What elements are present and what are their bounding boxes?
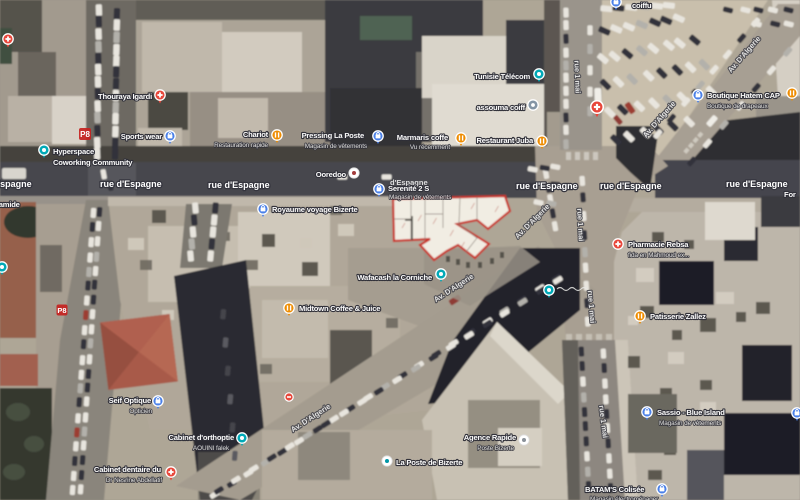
svg-text:Boutique de drapeaux: Boutique de drapeaux [707, 103, 768, 110]
svg-text:Marmaris coffe: Marmaris coffe [397, 133, 448, 142]
svg-text:Sports wear: Sports wear [121, 132, 163, 141]
svg-text:fida en Mahmoud ex...: fida en Mahmoud ex... [628, 252, 689, 259]
svg-text:rue d'Espagne: rue d'Espagne [600, 181, 662, 191]
svg-text:Vu récemment: Vu récemment [410, 144, 450, 151]
svg-text:rue 1 mai: rue 1 mai [572, 60, 582, 93]
svg-text:BATAM'S Colisée: BATAM'S Colisée [585, 485, 644, 494]
svg-text:Tunisie Télécom: Tunisie Télécom [474, 72, 530, 81]
svg-text:coiffu: coiffu [632, 1, 652, 10]
svg-text:Magasin électroménager: Magasin électroménager [590, 496, 659, 500]
svg-text:Restaurant Juba: Restaurant Juba [476, 136, 533, 145]
svg-text:La Poste de Bizerte: La Poste de Bizerte [396, 458, 462, 467]
svg-text:Pharmacie Rebsa: Pharmacie Rebsa [628, 240, 689, 249]
svg-text:ramide: ramide [0, 200, 20, 209]
svg-text:Wafacash la Corniche: Wafacash la Corniche [357, 273, 432, 282]
svg-text:Agence Rapide: Agence Rapide [464, 433, 516, 442]
svg-text:Restauration rapide: Restauration rapide [214, 142, 268, 149]
svg-text:Midtown Coffee & Juice: Midtown Coffee & Juice [299, 304, 380, 313]
svg-text:Poste Bizerte: Poste Bizerte [477, 445, 514, 452]
svg-text:Cabinet d'orthoptie: Cabinet d'orthoptie [168, 433, 234, 442]
svg-text:Magasin de vêtements: Magasin de vêtements [389, 194, 451, 201]
svg-text:AOUINI falek: AOUINI falek [193, 445, 230, 452]
svg-text:Seif Optique: Seif Optique [109, 396, 151, 405]
svg-text:assouma coiff: assouma coiff [477, 103, 526, 112]
svg-text:rue d'Espagne: rue d'Espagne [726, 179, 788, 189]
svg-text:rue d'Espagne: rue d'Espagne [208, 180, 270, 190]
svg-text:P8: P8 [80, 130, 90, 139]
svg-text:Royaume voyage Bizerte: Royaume voyage Bizerte [272, 205, 358, 214]
svg-text:Opticien: Opticien [129, 408, 152, 415]
svg-text:For: For [784, 190, 796, 199]
svg-text:Boutique Hatem CAP: Boutique Hatem CAP [707, 91, 780, 100]
svg-text:Sassio - Blue Island: Sassio - Blue Island [657, 408, 725, 417]
svg-text:rue d'Espagne: rue d'Espagne [0, 179, 32, 189]
svg-text:Chariot: Chariot [243, 130, 269, 139]
svg-text:rue d'Espagne: rue d'Espagne [516, 181, 578, 191]
svg-text:Thouraya Igardi: Thouraya Igardi [98, 92, 152, 101]
svg-text:Pressing La Poste: Pressing La Poste [302, 131, 364, 140]
svg-text:Magasin de vêtements: Magasin de vêtements [659, 420, 721, 427]
svg-text:Ooredoo: Ooredoo [316, 170, 347, 179]
svg-text:Cabinet dentaire du: Cabinet dentaire du [94, 465, 162, 474]
svg-text:rue d'Espagne: rue d'Espagne [100, 179, 162, 189]
svg-text:Dr Nesrine Abdellatif: Dr Nesrine Abdellatif [106, 477, 162, 484]
svg-text:P8: P8 [57, 306, 66, 315]
svg-text:Hyperspace: Hyperspace [53, 147, 94, 156]
svg-text:Coworking Community: Coworking Community [53, 158, 133, 167]
svg-text:Magasin de vêtements: Magasin de vêtements [305, 143, 367, 150]
svg-text:rue 1 mai: rue 1 mai [575, 208, 586, 241]
svg-text:Serenité 2 S: Serenité 2 S [388, 184, 429, 193]
svg-text:Patisserie Zallez: Patisserie Zallez [650, 312, 706, 321]
